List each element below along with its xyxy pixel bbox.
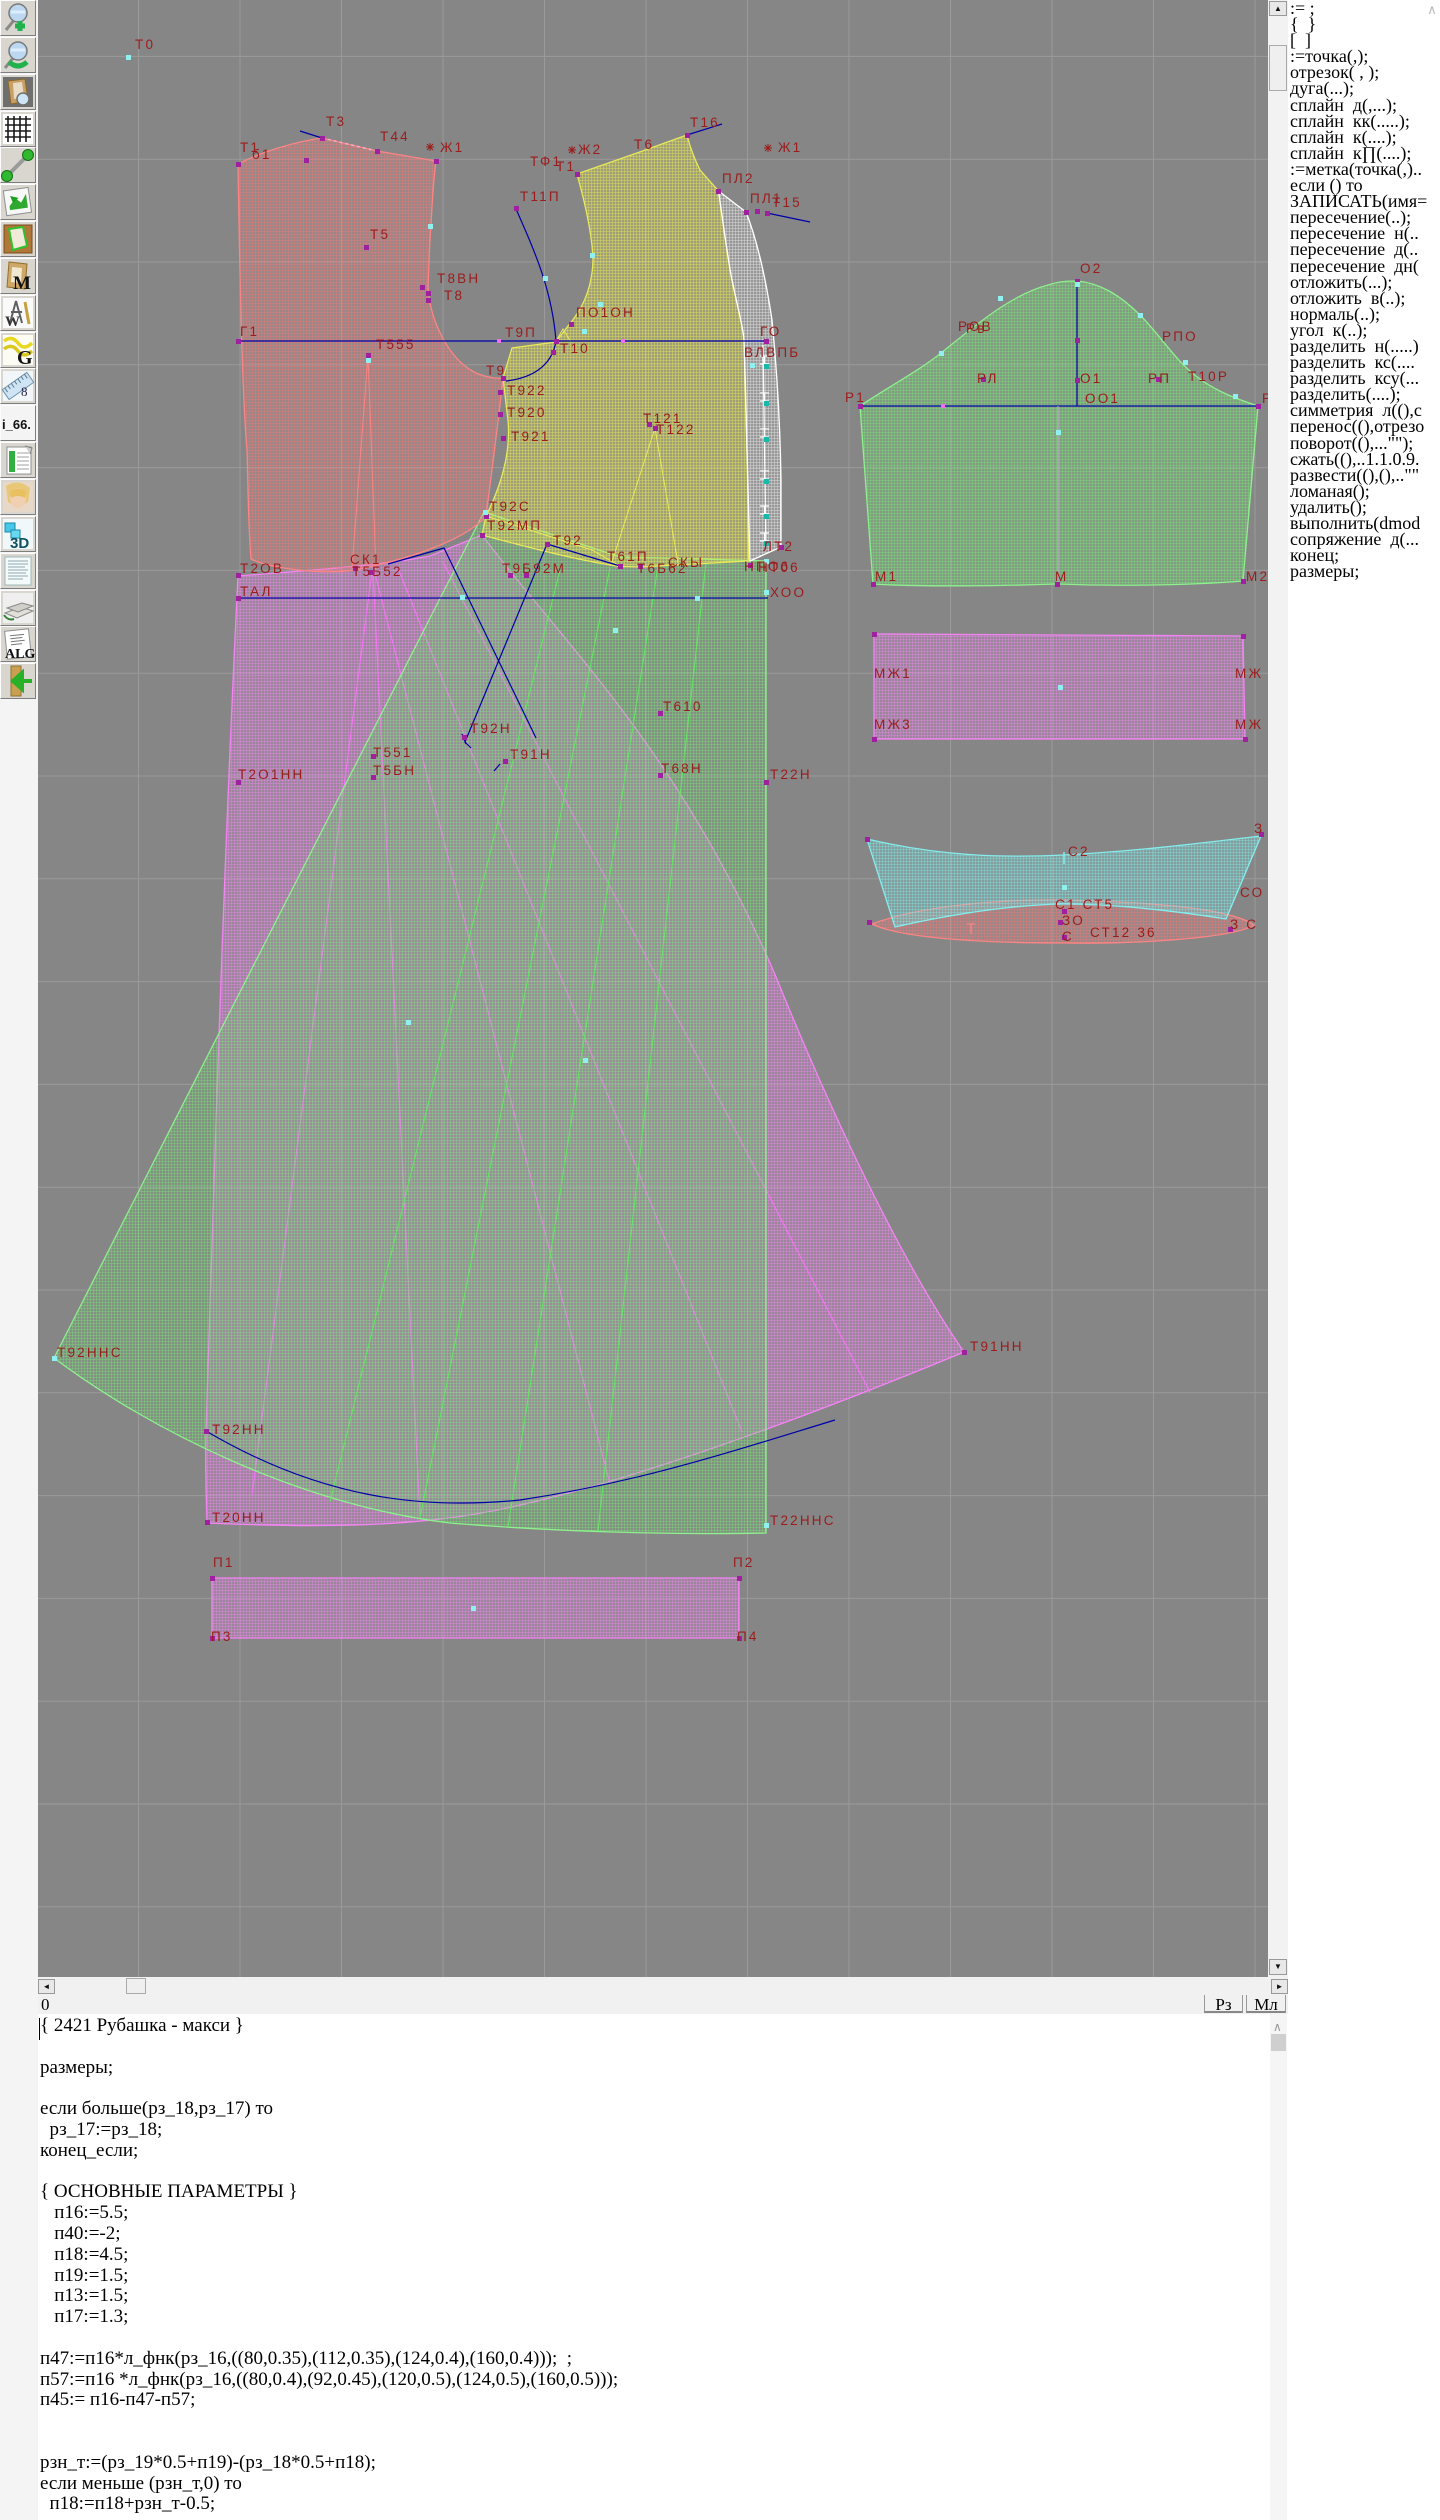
svg-text:Т92НН: Т92НН (212, 1422, 266, 1437)
svg-text:Т11П: Т11П (520, 189, 561, 204)
svg-text:СО: СО (1240, 885, 1264, 900)
svg-text:G: G (17, 347, 33, 367)
svg-text:С1 СТ5: С1 СТ5 (1055, 897, 1114, 912)
svg-text:ОО1: ОО1 (1085, 391, 1120, 406)
svg-text:Т92ННС: Т92ННС (57, 1345, 123, 1360)
svg-text:Т8: Т8 (444, 288, 464, 303)
svg-text:ХОО: ХОО (770, 585, 806, 600)
svg-text:Т610: Т610 (663, 699, 703, 714)
svg-text:Т44: Т44 (380, 129, 410, 144)
svg-text:МЖ1: МЖ1 (874, 666, 912, 681)
svg-text:ГО: ГО (760, 324, 781, 339)
svg-text:МЖ: МЖ (1235, 717, 1263, 732)
svg-text:Т91Н: Т91Н (510, 747, 552, 762)
svg-text:Т921: Т921 (511, 429, 551, 444)
svg-text:П2: П2 (733, 1555, 755, 1570)
svg-text:О1: О1 (1080, 371, 1102, 386)
svg-text:Т920: Т920 (507, 405, 547, 420)
svg-text:МЖ: МЖ (1235, 666, 1263, 681)
svg-text:3D: 3D (10, 535, 29, 551)
svg-text:РЛ: РЛ (977, 371, 999, 386)
svg-text:Ж1: Ж1 (440, 140, 464, 155)
svg-text:Г1: Г1 (240, 324, 259, 339)
svg-text:Т10: Т10 (560, 341, 590, 356)
svg-text:О2: О2 (1080, 261, 1102, 276)
svg-text:ПО1ОН: ПО1ОН (576, 305, 635, 320)
svg-text:Т91НН: Т91НН (970, 1339, 1024, 1354)
svg-text:Т2О1НН: Т2О1НН (238, 767, 304, 782)
svg-text:РПО: РПО (1162, 329, 1198, 344)
svg-text:Ж2: Ж2 (578, 142, 602, 157)
svg-text:З С: З С (1230, 917, 1258, 932)
svg-text:М: М (1055, 569, 1068, 584)
svg-text:Т92: Т92 (553, 533, 583, 548)
svg-text:СТ12 36: СТ12 36 (1090, 925, 1157, 940)
svg-text:С: С (1062, 929, 1074, 944)
svg-text:Т555: Т555 (376, 337, 416, 352)
svg-text:Т551: Т551 (373, 745, 413, 760)
svg-text:Т9Б92М: Т9Б92М (502, 561, 566, 576)
svg-text:Т68Н: Т68Н (661, 761, 703, 776)
svg-text:НТ06: НТ06 (758, 560, 800, 575)
svg-text:Рв: Рв (966, 321, 987, 336)
svg-text:Т92МП: Т92МП (487, 518, 542, 533)
svg-text:Т3: Т3 (326, 114, 346, 129)
svg-text:Т8ВН: Т8ВН (437, 271, 480, 286)
svg-text:РП: РП (1148, 371, 1171, 386)
svg-text:Т5: Т5 (370, 227, 390, 242)
svg-text:Т92С: Т92С (489, 499, 531, 514)
svg-text:М2: М2 (1246, 569, 1269, 584)
svg-text:Т1: Т1 (556, 159, 576, 174)
svg-text:Т20НН: Т20НН (212, 1510, 266, 1525)
svg-text:Т9: Т9 (486, 363, 506, 378)
svg-text:ЗО: ЗО (1062, 913, 1085, 928)
svg-text:Т92Н: Т92Н (470, 721, 512, 736)
svg-text:Т922: Т922 (507, 383, 547, 398)
svg-text:ВЛВПБ: ВЛВПБ (744, 345, 800, 360)
svg-text:Ж1: Ж1 (778, 140, 802, 155)
svg-text:W: W (5, 314, 20, 330)
svg-text:З: З (1254, 821, 1264, 836)
svg-text:Т15: Т15 (772, 195, 802, 210)
svg-text:Т5Б52: Т5Б52 (352, 564, 403, 579)
svg-text:Т122: Т122 (656, 422, 696, 437)
svg-text:ПЛ2: ПЛ2 (722, 171, 755, 186)
svg-text:ALG: ALG (5, 647, 35, 661)
svg-text:Т22Н: Т22Н (770, 767, 812, 782)
svg-text:П1: П1 (213, 1555, 235, 1570)
svg-text:M: M (13, 273, 31, 293)
svg-text:С2: С2 (1068, 844, 1090, 859)
svg-text:Т6: Т6 (634, 137, 654, 152)
svg-text:Т10Р: Т10Р (1188, 369, 1229, 384)
svg-text:Т2ОВ: Т2ОВ (240, 561, 284, 576)
svg-text:ТАЛ: ТАЛ (240, 584, 273, 599)
svg-text:б1: б1 (252, 147, 272, 162)
svg-text:П3: П3 (211, 1629, 233, 1644)
svg-text:Т22ННС: Т22ННС (770, 1513, 836, 1528)
svg-text:М1: М1 (875, 569, 898, 584)
svg-text:Р1: Р1 (845, 390, 866, 405)
svg-text:СКЫ: СКЫ (668, 555, 704, 570)
svg-text:8: 8 (21, 384, 28, 399)
svg-text:Т5БН: Т5БН (373, 763, 416, 778)
svg-text:Т9П: Т9П (505, 325, 537, 340)
svg-text:Т16: Т16 (690, 115, 720, 130)
svg-text:i_66.: i_66. (2, 417, 31, 432)
svg-text:МЖ3: МЖ3 (874, 717, 912, 732)
svg-text:Т0: Т0 (135, 37, 155, 52)
svg-text:ЛТ2: ЛТ2 (763, 539, 794, 554)
svg-text:П4: П4 (737, 1629, 759, 1644)
